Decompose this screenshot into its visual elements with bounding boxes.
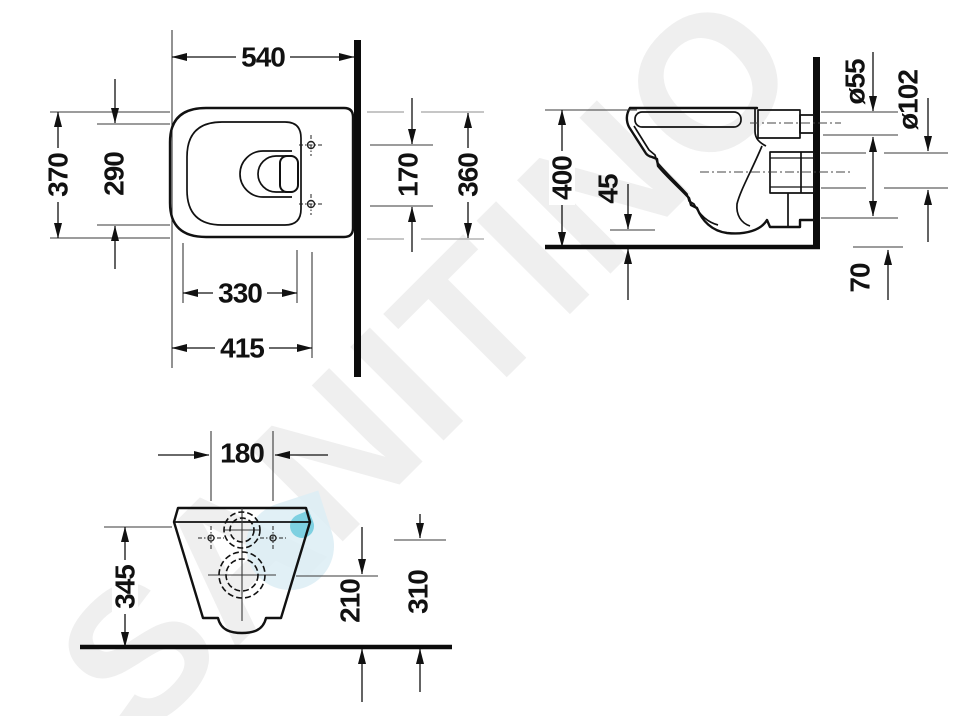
side-inlet-connector [758, 110, 800, 138]
dim-fixing-hole-spacing: 170 [370, 98, 433, 252]
dim-inlet-diameter: ø55 [840, 52, 874, 111]
mounting-hole-icon [198, 526, 224, 550]
dim-label-inlet-diameter: ø55 [840, 59, 871, 105]
mounting-hole-icon [299, 194, 323, 215]
dim-label-540: 540 [241, 42, 285, 73]
drawing-svg: 540 370 290 [0, 0, 960, 716]
mounting-hole-icon [299, 135, 323, 156]
side-trapway-curve [737, 146, 762, 226]
plan-wall-section [354, 40, 361, 377]
side-view: 400 45 ø55 [545, 52, 948, 300]
dim-inner-width: 290 [97, 79, 170, 269]
dim-outlet-centre-height: 210 [296, 527, 378, 702]
dim-front-hole-spacing: 180 [158, 431, 328, 501]
dim-label-180: 180 [220, 438, 264, 469]
side-bowl-inner-line [634, 126, 718, 225]
dim-label-400: 400 [547, 156, 578, 200]
dim-body-height: 345 [104, 527, 172, 647]
technical-drawing-page: SANITINO [0, 0, 960, 716]
side-reference-lines [821, 112, 948, 247]
dim-label-290: 290 [99, 152, 130, 196]
mounting-hole-icon [260, 526, 286, 550]
dim-label-outlet-diameter: ø102 [893, 70, 924, 130]
front-view: 180 345 210 310 [80, 431, 452, 702]
dim-rim-length: 330 [183, 243, 297, 309]
dim-label-370: 370 [43, 153, 74, 197]
dim-label-170: 170 [393, 153, 424, 197]
dim-label-345: 345 [110, 565, 141, 609]
dim-overall-length: 540 [172, 42, 354, 73]
dim-below-floor: 70 [845, 250, 889, 300]
dim-inlet-centre-height: 310 [394, 514, 446, 692]
side-seat-outline [635, 112, 741, 127]
side-bowl-back-line [755, 108, 766, 146]
side-inlet-flange [800, 115, 814, 133]
dim-label-360: 360 [453, 153, 484, 197]
dim-floor-clearance: 45 [593, 174, 656, 300]
dim-outlet-diameter: ø102 [893, 70, 929, 242]
dim-label-70: 70 [845, 263, 876, 293]
dim-label-415: 415 [220, 333, 264, 364]
dim-label-330: 330 [218, 278, 262, 309]
dim-label-210: 210 [335, 579, 366, 623]
dim-width-at-wall: 360 [367, 112, 484, 239]
dim-label-45: 45 [593, 174, 624, 204]
plan-flush-opening [280, 156, 298, 192]
dim-label-310: 310 [403, 570, 434, 614]
plan-view: 540 370 290 [43, 30, 485, 377]
